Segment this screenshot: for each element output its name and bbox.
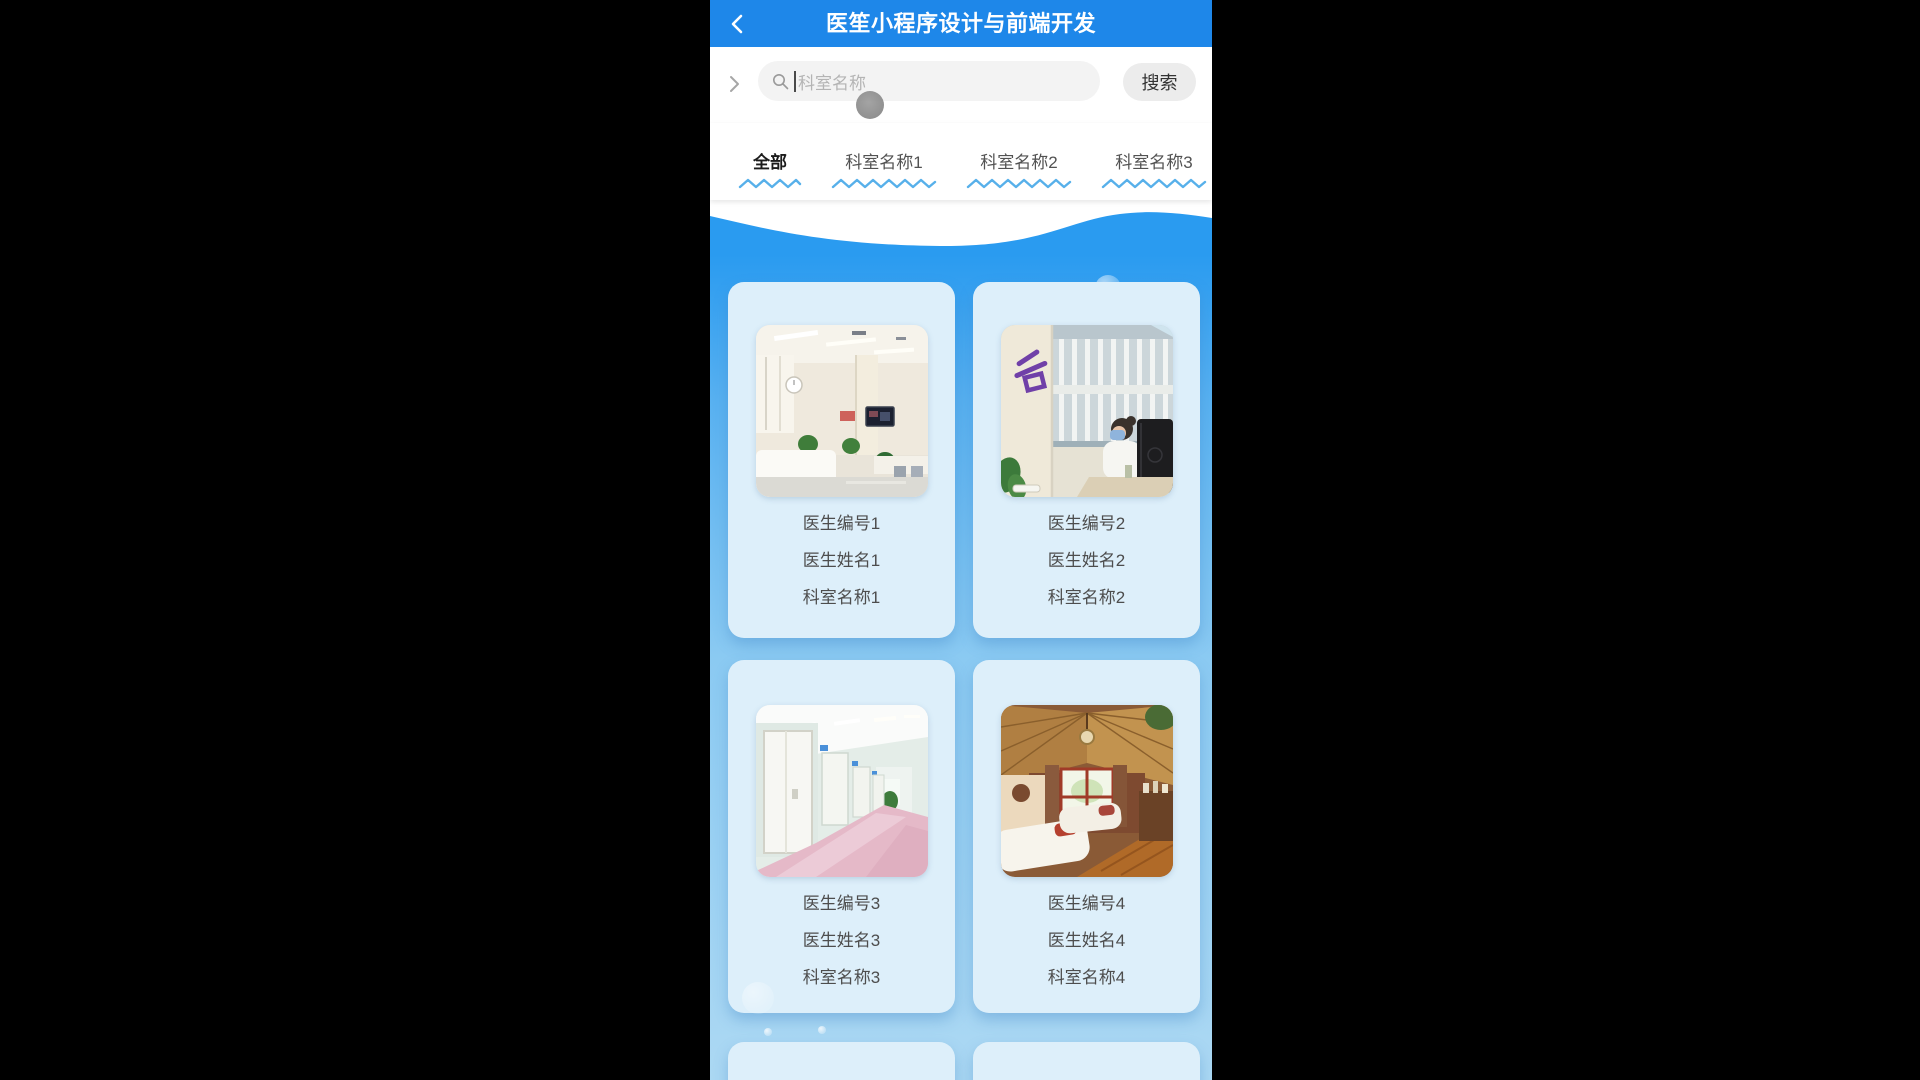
doctor-name: 医生姓名1 [728,542,955,579]
tab-all[interactable]: 全部 [738,148,802,200]
department-tabs: 全部 科室名称1 科室名称2 科室名称3 [710,123,1212,200]
search-section: 科室名称 搜索 [710,47,1212,123]
chevron-right-icon[interactable] [724,74,744,94]
doctor-dept: 科室名称1 [728,579,955,616]
doctor-card[interactable] [728,1042,955,1080]
desktop-background: 医笙小程序设计与前端开发 科室名称 搜索 全部 [0,0,1920,1080]
doctor-name: 医生姓名2 [973,542,1200,579]
tab-dept-2[interactable]: 科室名称2 [966,148,1072,200]
doctor-code: 医生编号2 [973,505,1200,542]
doctor-info: 医生编号1 医生姓名1 科室名称1 [728,505,955,616]
doctor-name: 医生姓名3 [728,922,955,959]
doctor-card[interactable]: 医生编号4 医生姓名4 科室名称4 [973,660,1200,1013]
doctor-info: 医生编号2 医生姓名2 科室名称2 [973,505,1200,616]
doctor-code: 医生编号1 [728,505,955,542]
bubble-decoration [818,1026,826,1034]
zigzag-underline [1101,177,1207,190]
doctor-code: 医生编号4 [973,885,1200,922]
search-placeholder: 科室名称 [798,69,866,94]
zigzag-underline [738,177,802,190]
doctor-dept: 科室名称4 [973,959,1200,996]
doctor-info: 医生编号4 医生姓名4 科室名称4 [973,885,1200,996]
search-input[interactable]: 科室名称 [758,61,1100,101]
zigzag-underline [966,177,1072,190]
mini-program-window: 医笙小程序设计与前端开发 科室名称 搜索 全部 [710,0,1212,1080]
doctor-card[interactable]: 医生编号2 医生姓名2 科室名称2 [973,282,1200,638]
doctor-info: 医生编号3 医生姓名3 科室名称3 [728,885,955,996]
doctor-card[interactable]: 医生编号3 医生姓名3 科室名称3 [728,660,955,1013]
navbar: 医笙小程序设计与前端开发 [710,0,1212,47]
doctor-photo-office-window [1001,325,1173,497]
doctor-card[interactable] [973,1042,1200,1080]
bubble-decoration [764,1028,772,1036]
tab-dept-3[interactable]: 科室名称3 [1101,148,1207,200]
search-icon [772,73,789,90]
zigzag-underline [831,177,937,190]
doctor-photo-wooden-ward [1001,705,1173,877]
page-title: 医笙小程序设计与前端开发 [710,0,1212,47]
search-button[interactable]: 搜索 [1123,63,1196,101]
doctor-code: 医生编号3 [728,885,955,922]
doctor-photo-corridor [756,705,928,877]
text-caret [794,71,796,92]
doctor-card[interactable]: 医生编号1 医生姓名1 科室名称1 [728,282,955,638]
tab-dept-1[interactable]: 科室名称1 [831,148,937,200]
touch-cursor [856,91,884,119]
bubble-decoration [742,982,774,1014]
wave-divider [710,200,1212,260]
doctor-dept: 科室名称2 [973,579,1200,616]
doctor-list[interactable]: 医生编号1 医生姓名1 科室名称1 [710,200,1212,1080]
doctor-photo-reception-lobby [756,325,928,497]
doctor-name: 医生姓名4 [973,922,1200,959]
